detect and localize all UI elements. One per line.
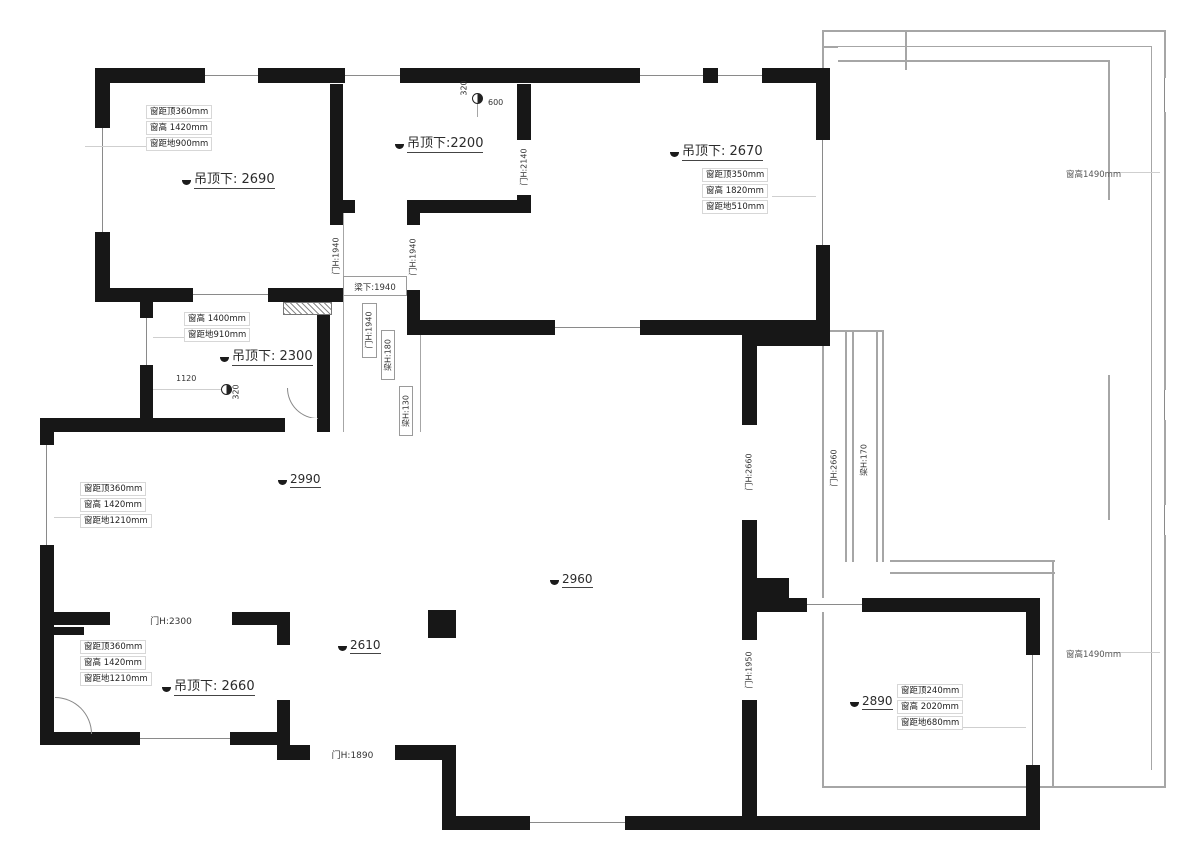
sliding-door-line [852,330,854,562]
door-height-label: 门H:1940 [408,237,419,276]
door-height-label: 门H:2660 [829,448,840,487]
pillar [428,610,456,638]
balcony-line [890,572,1055,574]
window [1160,78,1168,112]
window [345,68,400,83]
leader-line [153,389,221,390]
spotlight-icon [472,93,483,104]
wall [277,700,290,745]
wall [330,84,343,225]
door-arc [55,697,92,734]
leader-line [963,727,1026,728]
wall [317,302,330,432]
wall [258,68,345,83]
window-note: 窗距顶240mm 窗高 2020mm 窗距地680mm [897,684,963,732]
wall [268,288,343,302]
ceiling-symbol-icon [395,144,404,149]
wall [517,195,531,213]
window-note: 窗距顶360mm 窗高 1420mm 窗距地1210mm [80,482,152,530]
wall [395,745,455,760]
ceiling-height-label: 吊顶下: 2670 [670,140,763,159]
door-height-label: 门H:1940 [364,310,375,349]
window-note: 窗距顶360mm 窗高 1420mm 窗距地900mm [146,105,212,153]
ceiling-symbol-icon [338,646,347,651]
door-opening [285,418,317,432]
window [95,128,110,232]
window [1026,655,1040,765]
window-note: 窗距顶360mm 窗高 1420mm 窗距地1210mm [80,640,152,688]
window [205,68,258,83]
door-height-label: 门H:2660 [744,452,755,491]
door-height-label: 门H:1950 [744,650,755,689]
wall [95,68,205,83]
beam-label: 梁H:130 [401,394,412,428]
window [555,320,640,335]
beam-label: 梁H:180 [383,338,394,372]
leader-line [54,517,80,518]
wall [816,245,830,346]
ceiling-symbol-icon [850,702,859,707]
wall [742,700,757,830]
ceiling-symbol-icon [278,480,287,485]
cabinet-mark [44,627,84,635]
wall [40,545,54,612]
balcony-line [905,30,907,70]
corridor-line [343,213,344,432]
wall [703,68,718,83]
door-opening [277,645,290,700]
wall [407,200,517,213]
balcony-line [822,46,838,48]
dimension-label: 320 [460,79,469,96]
cabinet-mark [44,643,52,655]
wall [757,578,789,600]
floor-plan: 吊顶下: 2690 吊顶下:2200 吊顶下: 2670 吊顶下: 2300 吊… [0,0,1200,860]
window [718,68,762,83]
spotlight-icon [221,384,232,395]
window-note: 窗距顶350mm 窗高 1820mm 窗距地510mm [702,168,768,216]
wall [1026,598,1040,655]
ceiling-height-label: 吊顶下: 2690 [182,168,275,187]
balcony-line [1108,375,1110,520]
window [1160,390,1168,420]
leader-line [85,146,146,147]
leader-line [153,337,184,338]
ceiling-height-label: 2960 [550,572,593,587]
ceiling-height-label: 2610 [338,638,381,653]
wall [407,290,420,335]
wall [277,745,310,760]
wall [95,68,110,128]
door-height-label: 门H:2300 [110,614,232,627]
wall [742,346,757,425]
wall [625,816,1040,830]
ceiling-symbol-icon [550,580,559,585]
dimension-label: 320 [232,383,241,400]
corridor-line [420,335,421,432]
wall [277,612,290,645]
ceiling-height-label: 吊顶下:2200 [395,132,483,151]
wall [420,320,555,335]
window [816,140,830,245]
door-arc [287,388,318,419]
sliding-door-line [845,330,847,562]
wall [343,200,355,213]
door-height-label: 门H:2140 [519,147,530,186]
beam-label: 梁下:1940 [343,281,407,293]
ceiling-height-label: 2890 [850,694,893,709]
dimension-label: 1120 [176,374,196,383]
wall [742,520,757,640]
door-height-label: 门H:1890 [310,748,395,761]
wall [640,320,757,335]
wall [40,418,285,432]
ceiling-symbol-icon [162,687,171,692]
balcony-inner-line [838,46,1152,770]
window [807,598,862,612]
window-note: 窗高 1400mm 窗距地910mm [184,312,250,344]
hatched-window [283,302,332,315]
wall [140,302,153,318]
sliding-door-line [876,330,878,562]
sliding-door-line [882,330,884,562]
wall [816,68,830,140]
window [530,816,625,830]
balcony-line [890,560,1055,562]
door-height-label: 门H:1940 [331,236,342,275]
ceiling-symbol-icon [182,180,191,185]
window [193,288,268,302]
ceiling-height-label: 吊顶下: 2300 [220,345,313,364]
sliding-door-line [822,330,884,332]
wall [757,598,807,612]
leader-line [772,196,816,197]
wall [407,213,420,225]
leader-line [477,103,478,117]
window [140,318,153,365]
wall [330,213,343,225]
balcony-line [838,60,1108,62]
wall [862,598,1040,612]
wall [317,418,330,432]
door-opening [355,200,407,213]
wall [517,84,531,140]
window [640,68,703,83]
wall [140,365,153,432]
balcony-line [1052,560,1054,788]
dimension-label: 600 [488,98,503,107]
ceiling-height-label: 吊顶下: 2660 [162,675,255,694]
beam-label: 梁H:170 [859,443,870,477]
window-height-label: 窗高1490mm [1066,648,1121,660]
window [140,732,230,745]
window [1160,505,1168,535]
wall [95,288,193,302]
window [40,445,54,545]
wall [400,68,640,83]
ceiling-height-label: 2990 [278,472,321,487]
ceiling-symbol-icon [670,152,679,157]
ceiling-symbol-icon [220,357,229,362]
window-height-label: 窗高1490mm [1066,168,1121,180]
